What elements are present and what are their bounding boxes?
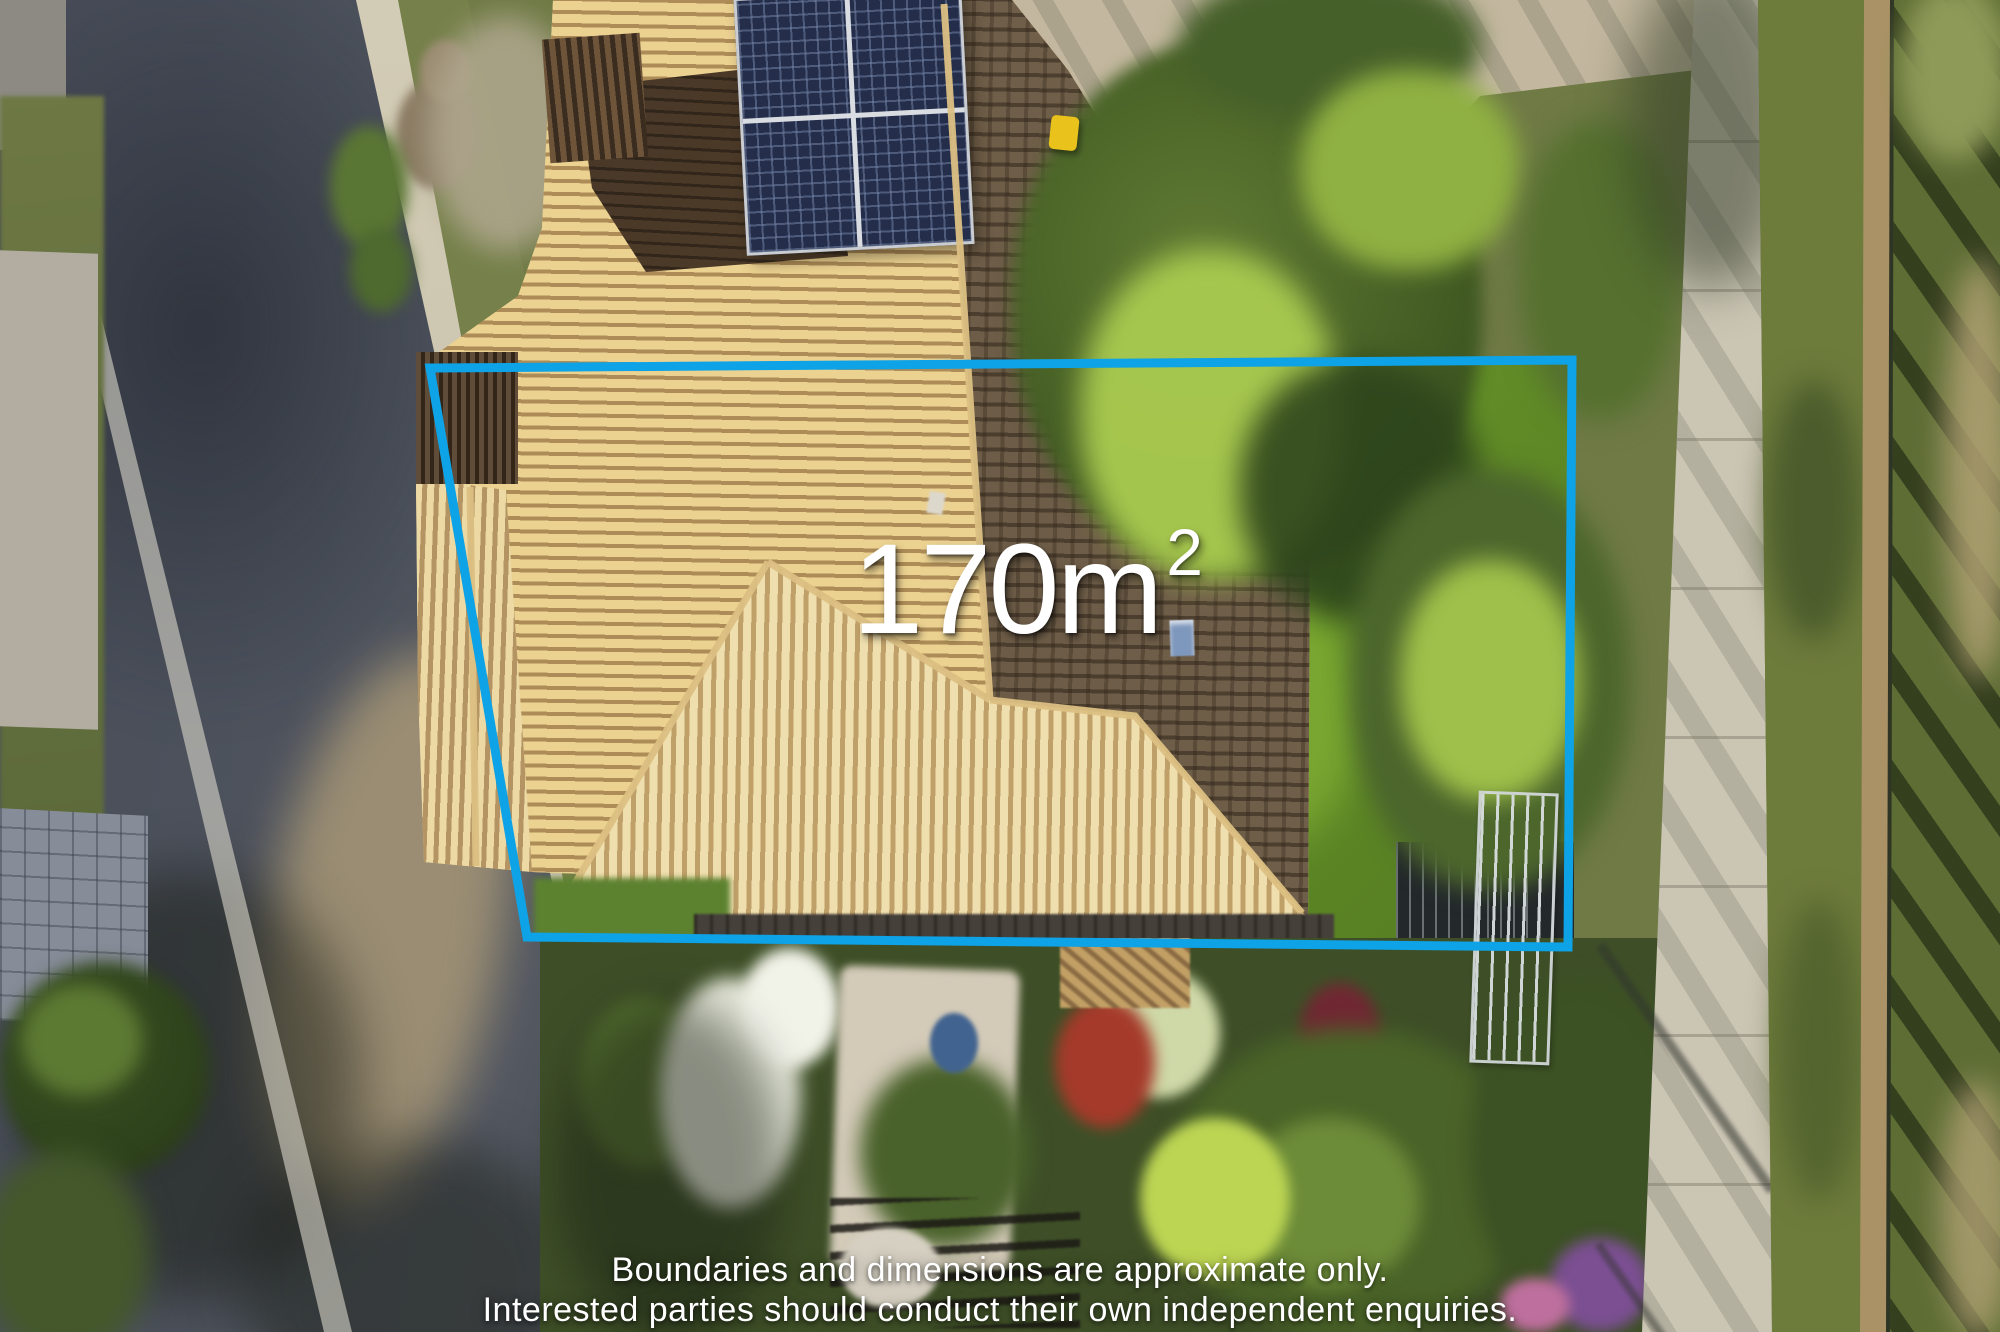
area-label-value: 170m — [852, 518, 1160, 661]
grass-shadow — [1778, 900, 1860, 1200]
hedge-highlight — [22, 985, 142, 1095]
verge-shrub — [350, 228, 412, 312]
solar-panels — [733, 0, 974, 256]
white-flower-shrub — [740, 948, 840, 1068]
area-label-superscript: 2 — [1166, 515, 1203, 589]
grass-shadow — [1768, 380, 1860, 640]
disclaimer-line-1: Boundaries and dimensions are approximat… — [0, 1250, 2000, 1290]
yellow-bin — [1048, 115, 1079, 152]
tree-canopy-bright — [1300, 70, 1520, 270]
timber-planks — [1060, 938, 1190, 1008]
metal-gate — [1469, 791, 1558, 1066]
aerial-property-photo: 170m2 Boundaries and dimensions are appr… — [0, 0, 2000, 1332]
verge-shrub — [330, 126, 408, 248]
red-flower-shrub — [1055, 998, 1155, 1128]
timber-deck — [416, 352, 518, 484]
neighbour-driveway — [0, 250, 98, 729]
disclaimer: Boundaries and dimensions are approximat… — [0, 1250, 2000, 1330]
disclaimer-line-2: Interested parties should conduct their … — [0, 1290, 2000, 1330]
tree-canopy-bright — [1400, 560, 1580, 800]
pergola-slats — [542, 33, 648, 164]
area-label: 170m2 — [852, 516, 1203, 663]
blue-pot — [930, 1013, 978, 1073]
